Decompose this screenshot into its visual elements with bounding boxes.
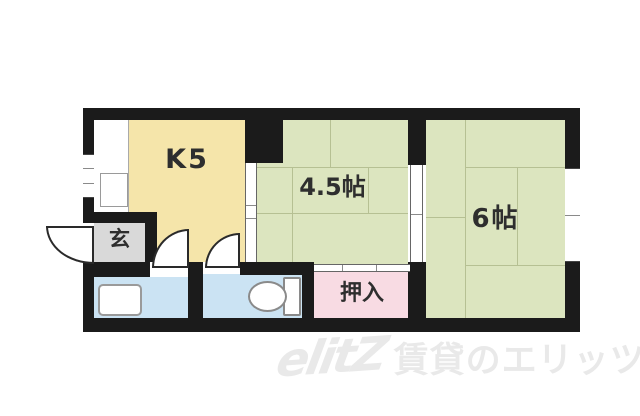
sliding-door-kitchen-room45 (245, 163, 257, 262)
wall-toilet-top (240, 262, 308, 275)
wall-room45-room6-lower (408, 262, 426, 318)
watermark-text: 賃貸のエリッツ (394, 334, 640, 379)
tatami-line (465, 265, 565, 266)
sliding-door-closet (314, 264, 410, 272)
wall-top (83, 108, 580, 120)
watermark: elitZ 賃貸のエリッツ (278, 334, 640, 381)
room-6-label: 6帖 (426, 206, 565, 232)
bathtub-icon (98, 284, 142, 316)
wall-room45-room6-upper (408, 108, 426, 165)
tatami-line (292, 213, 293, 264)
toilet-bowl-icon (248, 281, 287, 312)
wall-kitchen-room45 (245, 108, 283, 163)
wall-left-upper (83, 108, 94, 154)
floor-plan-canvas: K5 4.5帖 6帖 玄 押入 elitZ 賃貸のエリッツ (0, 0, 640, 416)
kitchen-label: K5 (129, 146, 245, 173)
entrance-label: 玄 (94, 229, 145, 250)
wall-toilet-closet (302, 262, 314, 318)
wall-entrance-bottom (83, 262, 150, 277)
wall-washroom-toilet (188, 262, 203, 318)
tatami-line (330, 120, 331, 167)
tatami-line (465, 167, 565, 168)
entry-door-swing-icon (46, 226, 94, 264)
kitchen-sink-icon (100, 173, 128, 207)
wall-right-upper (565, 108, 580, 168)
room-45-label: 4.5帖 (257, 175, 408, 199)
closet-label: 押入 (314, 283, 410, 305)
watermark-logo: elitZ (273, 330, 389, 384)
tatami-line (257, 213, 408, 214)
tatami-line (257, 167, 408, 168)
window-right (565, 168, 580, 262)
sliding-door-room45-room6 (410, 165, 423, 262)
wall-right-lower (565, 260, 580, 332)
window-left (83, 154, 94, 198)
